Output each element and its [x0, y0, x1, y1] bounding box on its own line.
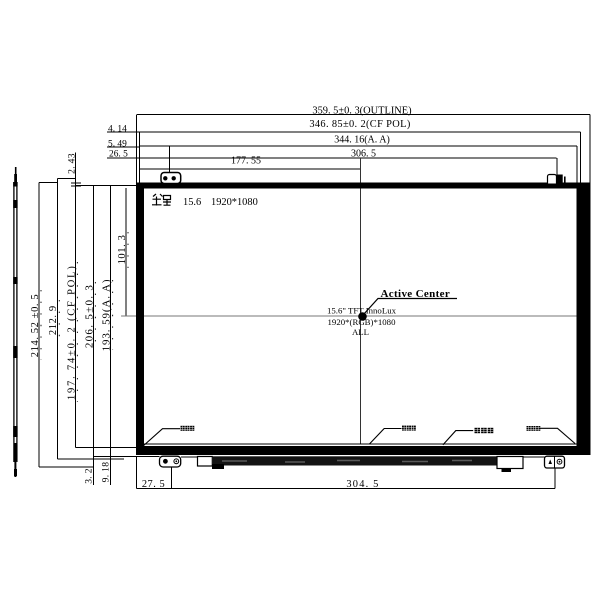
svg-text:15.6: 15.6	[183, 197, 201, 208]
svg-text:359. 5±0. 3(OUTLINE): 359. 5±0. 3(OUTLINE)	[312, 106, 411, 117]
svg-text:346. 85±0. 2(CF POL): 346. 85±0. 2(CF POL)	[309, 119, 410, 130]
svg-text:3. 2: 3. 2	[84, 468, 95, 484]
svg-text:177. 55: 177. 55	[231, 156, 261, 167]
svg-text:206. 5±0. 3: 206. 5±0. 3	[83, 284, 95, 348]
svg-text:27. 5: 27. 5	[142, 479, 165, 490]
svg-text:4. 14: 4. 14	[108, 125, 127, 135]
svg-text:214. 52 ±0. 5: 214. 52 ±0. 5	[30, 294, 41, 357]
svg-text:9. 18: 9. 18	[101, 462, 112, 483]
svg-text:15.6" TFT InnoLux: 15.6" TFT InnoLux	[327, 306, 397, 316]
svg-text:212. 9: 212. 9	[48, 305, 59, 335]
svg-text:344. 16(A. A): 344. 16(A. A)	[334, 135, 390, 146]
svg-text:306. 5: 306. 5	[351, 148, 376, 159]
svg-text:193. 59(A. A): 193. 59(A. A)	[101, 279, 113, 352]
svg-text:26. 5: 26. 5	[109, 149, 128, 159]
svg-text:Active Center: Active Center	[381, 288, 451, 300]
svg-text:ALL: ALL	[352, 327, 369, 337]
svg-text:5. 49: 5. 49	[108, 140, 127, 150]
svg-text:197. 74±0. 2 (CF POL): 197. 74±0. 2 (CF POL)	[66, 264, 77, 400]
svg-text:1920*1080: 1920*1080	[211, 197, 258, 208]
svg-text:1920*(RGB)*1080: 1920*(RGB)*1080	[328, 317, 397, 327]
svg-text:2. 43: 2. 43	[66, 153, 77, 174]
svg-text:304. 5: 304. 5	[346, 479, 379, 490]
svg-text:101. 3: 101. 3	[117, 235, 128, 265]
